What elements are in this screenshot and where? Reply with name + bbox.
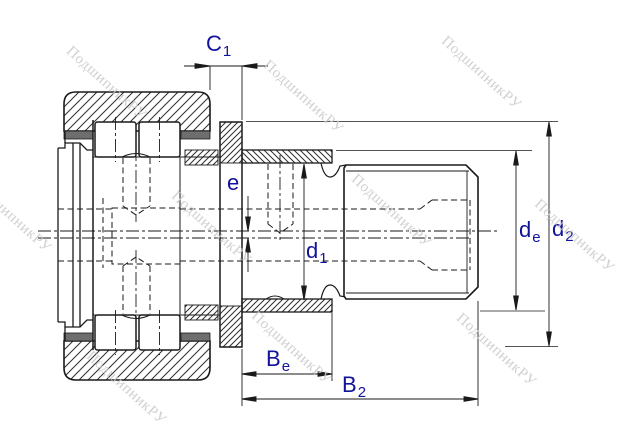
thread-section: [344, 165, 478, 299]
dimension-be: [242, 313, 332, 406]
rollers: [95, 122, 180, 350]
dimension-b2: [242, 301, 478, 406]
left-end-cap: [58, 120, 93, 350]
flange-washer: [220, 122, 242, 347]
stud-ribs: [185, 150, 218, 320]
bearing-drawing-svg: [0, 0, 624, 444]
dimension-d1: [302, 164, 307, 300]
technical-drawing-page: C1 e d1 de d2 Be B2 ПодшипникРУПодшипник…: [0, 0, 624, 444]
